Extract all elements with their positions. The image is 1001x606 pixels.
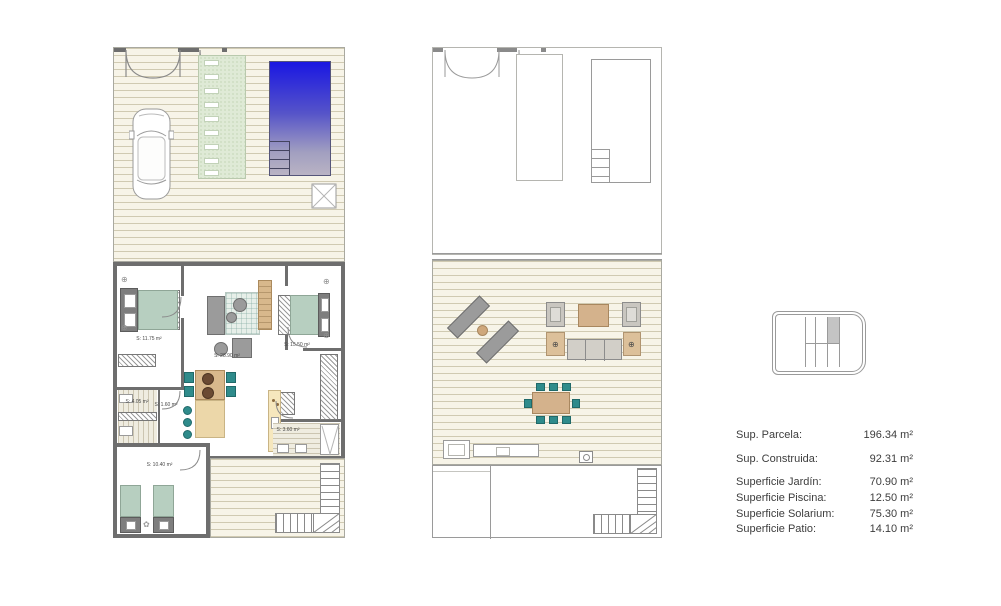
stepping-stone xyxy=(204,88,219,94)
rosette-icon: ⊕ xyxy=(323,332,330,340)
chair xyxy=(184,372,194,383)
pillow xyxy=(126,521,136,530)
bedroom-3: S: 10.40 m² ✿ xyxy=(113,443,210,538)
stepping-stone xyxy=(204,144,219,150)
unit-divider xyxy=(805,317,806,367)
coffee-table xyxy=(226,312,237,323)
legend-value: 14.10 m² xyxy=(870,523,913,536)
legend-label: Sup. Parcela: xyxy=(736,429,802,442)
side-table xyxy=(477,325,488,336)
path-outline xyxy=(516,54,563,181)
armchair xyxy=(622,302,641,327)
door-arc-icon xyxy=(275,400,294,419)
highlighted-unit xyxy=(828,317,839,343)
stool xyxy=(183,406,192,415)
stepping-stone xyxy=(204,60,219,66)
stool xyxy=(183,430,192,439)
bed-foot xyxy=(153,517,174,533)
table-setting xyxy=(202,387,214,399)
pillow xyxy=(321,298,329,312)
bed xyxy=(153,485,174,517)
room-area-label: S: 11.75 m² xyxy=(119,337,179,343)
barbecue-burner xyxy=(583,454,590,461)
flower-icon: ✿ xyxy=(143,521,150,529)
door-arc-icon xyxy=(161,296,182,318)
ground-floor-plan: ⊕ ⊕ S: 11.75 m² S: 28.90 m² ⊕ xyxy=(113,47,345,538)
pillow xyxy=(321,318,329,332)
armchair-cushion xyxy=(550,307,561,322)
counter-unit xyxy=(443,440,470,459)
legend-row: Superficie Piscina: 12.50 m² xyxy=(736,492,913,505)
legend-value: 70.90 m² xyxy=(870,476,913,489)
lounge-chair: ⊕ xyxy=(623,332,641,356)
garden-area xyxy=(113,47,345,262)
pool-steps-outline xyxy=(592,149,610,182)
stool xyxy=(183,418,192,427)
stepping-stone xyxy=(204,130,219,136)
chair xyxy=(536,416,545,424)
staircase xyxy=(275,513,315,533)
door-arc-icon xyxy=(179,449,201,471)
pool-outline xyxy=(591,59,651,183)
legend-row: Sup. Parcela: 196.34 m² xyxy=(736,429,913,442)
pool-steps xyxy=(270,141,290,175)
legend-label: Superficie Solarium: xyxy=(736,508,834,521)
kitchen-island xyxy=(195,400,225,438)
wall xyxy=(158,390,160,445)
area-legend: Sup. Parcela: 196.34 m² Sup. Construida:… xyxy=(736,429,913,539)
chair xyxy=(549,416,558,424)
stepping-stone xyxy=(204,74,219,80)
bed-foot xyxy=(120,517,141,533)
armchair xyxy=(546,302,565,327)
stepping-stone xyxy=(204,170,219,176)
legend-row: Superficie Jardín: 70.90 m² xyxy=(736,476,913,489)
rear-deck xyxy=(210,458,345,538)
chair xyxy=(536,383,545,391)
bed xyxy=(120,485,141,517)
unit-divider xyxy=(839,317,840,367)
counter-sink xyxy=(448,444,465,456)
lower-outline xyxy=(432,465,662,538)
car-icon xyxy=(129,104,174,204)
sofa xyxy=(567,339,622,360)
room-area-label: S: 3.60 m² xyxy=(263,428,313,434)
pillow xyxy=(124,294,136,308)
legend-value: 196.34 m² xyxy=(863,429,913,442)
legend-label: Superficie Piscina: xyxy=(736,492,827,505)
stepping-stone xyxy=(204,158,219,164)
legend-label: Sup. Construida: xyxy=(736,453,818,466)
rosette-icon: ⊕ xyxy=(552,341,559,349)
lounge-chair: ⊕ xyxy=(546,332,565,356)
floorplan-sheet: ⊕ ⊕ S: 11.75 m² S: 28.90 m² ⊕ xyxy=(0,0,1001,606)
chair xyxy=(184,386,194,397)
pool xyxy=(269,61,331,176)
unit-divider xyxy=(815,317,816,367)
toilet xyxy=(295,444,307,453)
chair xyxy=(524,399,532,408)
armchair-cushion xyxy=(626,307,637,322)
wall-stub xyxy=(433,48,443,52)
wall xyxy=(181,266,184,296)
chair xyxy=(549,383,558,391)
toilet xyxy=(119,426,133,436)
chair xyxy=(562,416,571,424)
solarium-floor-plan: ⊕ ⊕ xyxy=(432,47,662,538)
legend-row: Superficie Solarium: 75.30 m² xyxy=(736,508,913,521)
house-interior: ⊕ ⊕ S: 11.75 m² S: 28.90 m² ⊕ xyxy=(113,262,345,460)
pillow xyxy=(159,521,169,530)
chair xyxy=(572,399,580,408)
counter-unit xyxy=(473,444,539,457)
legend-value: 75.30 m² xyxy=(870,508,913,521)
wall xyxy=(285,266,288,286)
rosette-icon: ⊕ xyxy=(628,341,635,349)
staircase xyxy=(593,514,633,534)
wardrobe xyxy=(118,354,156,367)
solarium-deck: ⊕ ⊕ xyxy=(432,260,662,465)
unit-divider xyxy=(805,343,840,344)
rosette-icon: ⊕ xyxy=(121,324,128,332)
site-key-plan xyxy=(772,311,866,375)
rosette-icon: ⊕ xyxy=(121,276,128,284)
dining-table xyxy=(532,392,570,414)
wall-line xyxy=(433,471,490,472)
wall-line xyxy=(490,466,491,539)
entrance-double-door-icon xyxy=(443,49,501,82)
door-arc-icon xyxy=(161,390,181,410)
sink xyxy=(277,444,289,453)
sofa xyxy=(207,296,225,335)
stepping-stone xyxy=(204,102,219,108)
shower-pad-icon xyxy=(311,183,337,209)
legend-value: 12.50 m² xyxy=(870,492,913,505)
legend-row: Superficie Patio: 14.10 m² xyxy=(736,523,913,536)
site-boundary-inner xyxy=(775,314,863,372)
sideboard xyxy=(258,280,272,330)
stair-hatch-icon xyxy=(630,514,657,534)
stepping-stone xyxy=(204,116,219,122)
door-arc-icon xyxy=(287,326,308,348)
coffee-table xyxy=(578,304,609,327)
garden-path xyxy=(198,55,246,179)
legend-value: 92.31 m² xyxy=(870,453,913,466)
counter-sink xyxy=(496,447,510,456)
balustrade xyxy=(432,253,662,260)
sofa-divider xyxy=(604,340,605,361)
garden-outline xyxy=(432,47,662,255)
entrance-double-door-icon xyxy=(124,49,182,82)
table-setting xyxy=(202,373,214,385)
legend-row: Sup. Construida: 92.31 m² xyxy=(736,453,913,466)
chair xyxy=(226,372,236,383)
shower-screen xyxy=(118,412,157,421)
shower xyxy=(320,424,339,455)
chair xyxy=(226,386,236,397)
coffee-table xyxy=(233,298,247,312)
stair-hatch-icon xyxy=(313,513,340,533)
wardrobe xyxy=(320,354,338,420)
rosette-icon: ⊕ xyxy=(323,278,330,286)
sofa-divider xyxy=(585,340,586,361)
barbecue xyxy=(579,451,593,463)
room-area-label: S: 28.90 m² xyxy=(197,354,257,360)
chair xyxy=(562,383,571,391)
legend-label: Superficie Patio: xyxy=(736,523,816,536)
legend-label: Superficie Jardín: xyxy=(736,476,822,489)
